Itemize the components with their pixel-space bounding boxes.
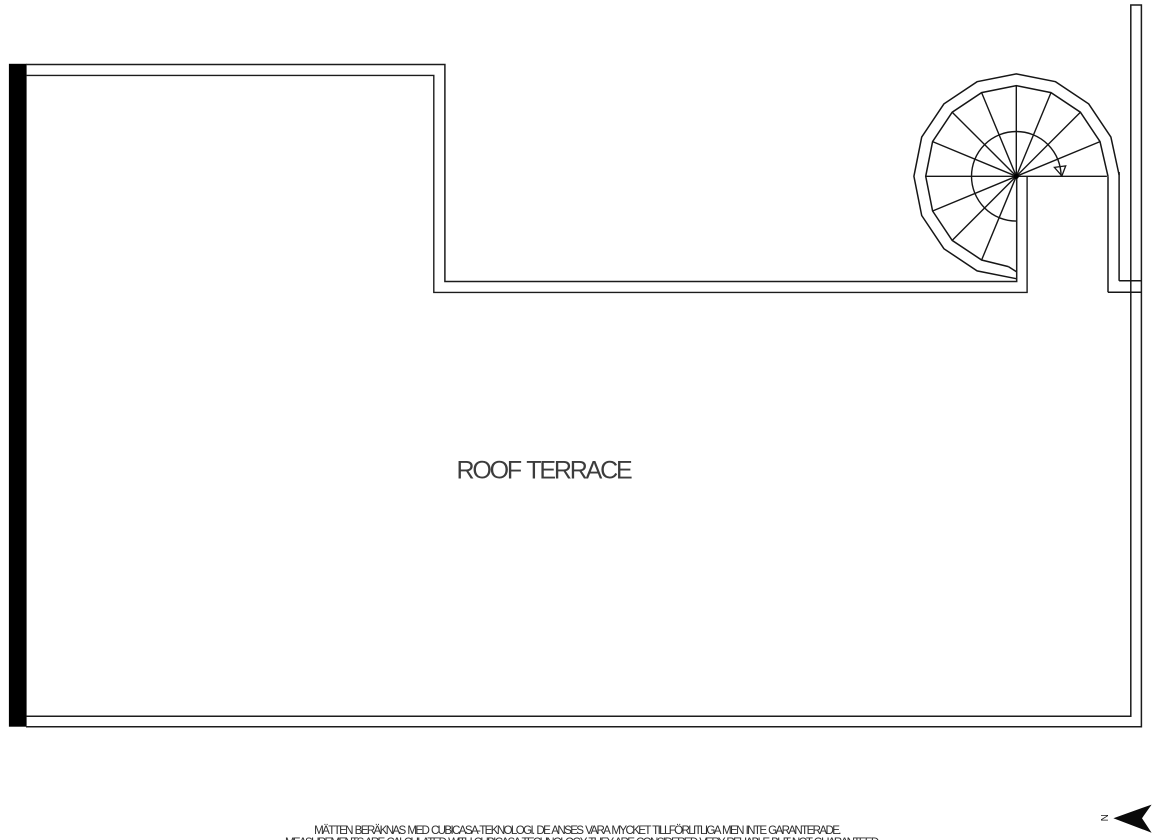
svg-text:MEASUREMENTS ARE CALCULATED WI: MEASUREMENTS ARE CALCULATED WITH CUBICAS… bbox=[285, 836, 881, 840]
svg-text:ROOF TERRACE: ROOF TERRACE bbox=[456, 456, 632, 484]
svg-text:N: N bbox=[1098, 814, 1109, 821]
